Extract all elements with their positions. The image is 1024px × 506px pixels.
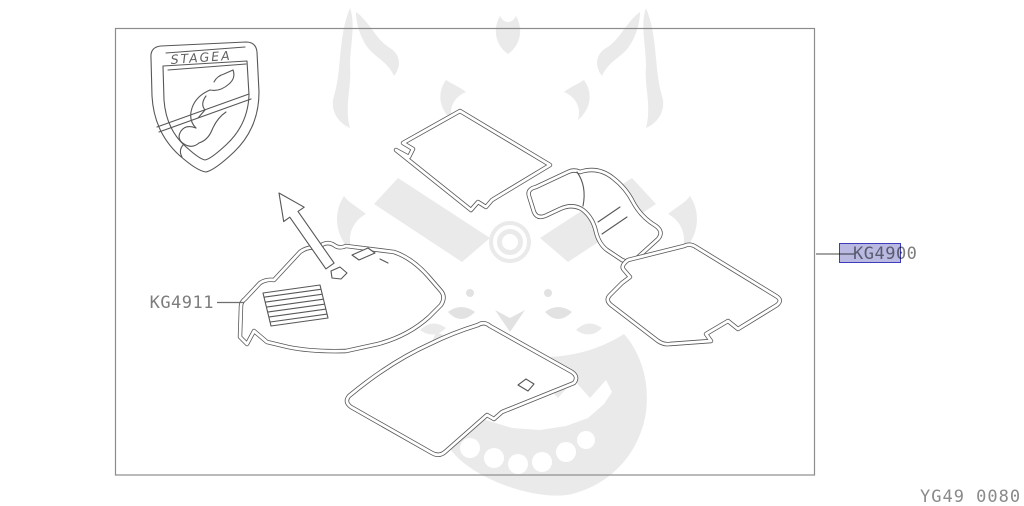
selection-highlight [839,243,901,263]
stagea-badge: STAGEA [151,42,259,172]
floor-mat-driver[interactable] [240,243,444,351]
part-label-kg4911[interactable]: KG4911 [148,294,214,313]
horse-emblem-icon [179,70,234,157]
parts-diagram-page: STAGEA [0,0,1024,506]
sheet-code: YG49 0080 [920,488,1021,506]
floor-mat-rear-right[interactable] [608,245,780,344]
stagea-badge-text: STAGEA [170,48,232,67]
floor-mat-tunnel[interactable] [529,170,661,262]
